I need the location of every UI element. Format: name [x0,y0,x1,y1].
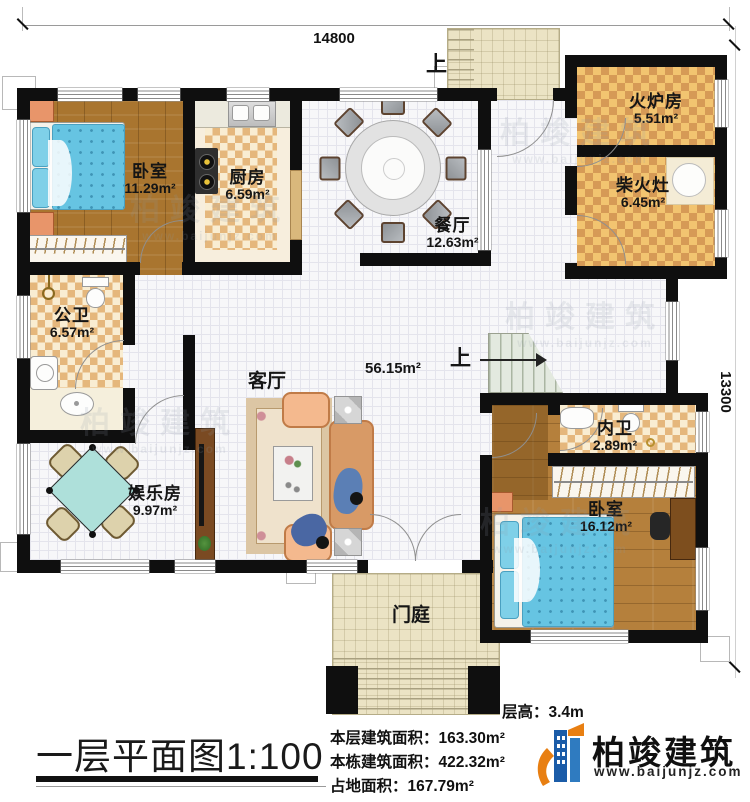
bed-sheet [48,140,72,206]
window [58,88,122,101]
dining-chair [446,157,467,181]
wall [696,452,708,548]
wall [17,262,140,275]
wall [480,393,708,405]
table-corner-dot [46,487,53,494]
window [715,210,728,257]
stat-footprint-area: 占地面积：167.79m² [330,774,474,796]
window [715,80,728,127]
toilet-tank [82,277,109,287]
wall [553,88,565,101]
person-head [350,492,363,505]
window [61,560,149,573]
coffee-table [273,446,313,501]
room-label-public-bathroom: 公卫6.57m² [28,306,116,341]
bed-sheet [514,538,540,602]
wall [548,453,708,466]
wall [123,275,135,345]
room-label-inner-bathroom: 内卫2.89m² [572,419,658,454]
wall [17,430,125,443]
top-dimension-line [22,25,730,26]
wall [478,250,491,266]
brand-website: www.baijunjz.com [594,764,743,779]
stair-arrow-head-icon [536,353,547,367]
wall [548,405,560,415]
wall [195,262,302,275]
dining-table-center [383,158,405,180]
wall [183,335,195,450]
wall [182,262,195,275]
room-label-bedroom1: 卧室11.29m² [95,162,205,197]
room-label-bedroom2: 卧室16.12m² [556,500,656,535]
floor-plan-page: 14800 13300 上 上 [0,0,750,802]
lamp-icon [42,287,55,300]
top-dimension-label: 14800 [300,30,368,47]
window [696,412,709,452]
dimension-extension-line [22,7,23,31]
room-label-living: 客厅 [248,366,286,393]
stat-building-total-area: 本栋建筑面积：422.32m² [330,750,505,772]
right-dimension-label: 13300 [714,354,734,430]
porch-column [468,666,500,714]
wall [565,55,727,67]
sofa-cushion-line [331,455,372,457]
wall [480,630,538,643]
stat-floor-height: 层高：3.4m [502,700,584,722]
plant-icon [198,536,211,551]
brand-logo-icon [534,722,588,790]
stair-up-label: 上 [450,342,471,372]
window [17,120,30,212]
sink-basin [253,105,270,121]
armchair [282,392,330,428]
stat-this-floor-area: 本层建筑面积：163.30m² [330,726,505,748]
right-dimension-line [735,26,736,678]
room-label-entertainment: 娱乐房9.97m² [110,484,200,519]
title-rule [36,776,318,782]
wall [565,67,577,118]
room-label-kitchen: 厨房6.59m² [200,168,295,203]
window [227,88,269,101]
sink-drain [74,401,79,406]
table-corner-dot [89,531,96,538]
window [696,548,709,610]
page-title: 一层平面图1:100 [36,726,324,780]
person-head [316,536,329,549]
porch-column [326,666,358,714]
wall [360,253,490,266]
side-table [334,528,362,556]
sink-basin [232,105,249,121]
window [17,444,30,534]
wall [480,455,492,642]
wall [290,240,302,262]
wardrobe-rod [554,481,693,483]
wall [715,55,727,80]
window [138,88,180,101]
wall [696,610,708,643]
wall [715,127,727,210]
wall [565,166,577,215]
wall [565,266,727,279]
toilet-bowl [86,288,105,308]
washing-machine-door [36,364,54,382]
desk [670,498,696,560]
nightstand [26,98,54,122]
stair-direction-arrow [480,359,538,361]
wall [478,100,491,150]
room-area-living: 56.15m² [365,360,421,377]
side-table [334,396,362,424]
window [307,560,357,573]
window [175,560,215,573]
room-label-foyer: 门庭 [392,600,430,627]
wall [290,100,302,170]
title-rule-thin [36,786,326,787]
nightstand [26,212,54,236]
window [666,302,679,360]
table-corner-dot [89,444,96,451]
wall [666,279,678,302]
room-label-dining: 餐厅12.63m² [400,216,505,251]
window [340,88,437,101]
dining-chair [320,157,341,181]
back-stair-up-label: 上 [426,48,447,78]
window [531,630,628,643]
wall [480,405,492,413]
lamp-cord [48,274,50,288]
room-label-firewood-stove: 柴火灶6.45m² [588,176,698,211]
wardrobe-rod [30,248,125,250]
room-label-furnace: 火炉房5.51m² [601,92,711,127]
wall [696,393,708,412]
